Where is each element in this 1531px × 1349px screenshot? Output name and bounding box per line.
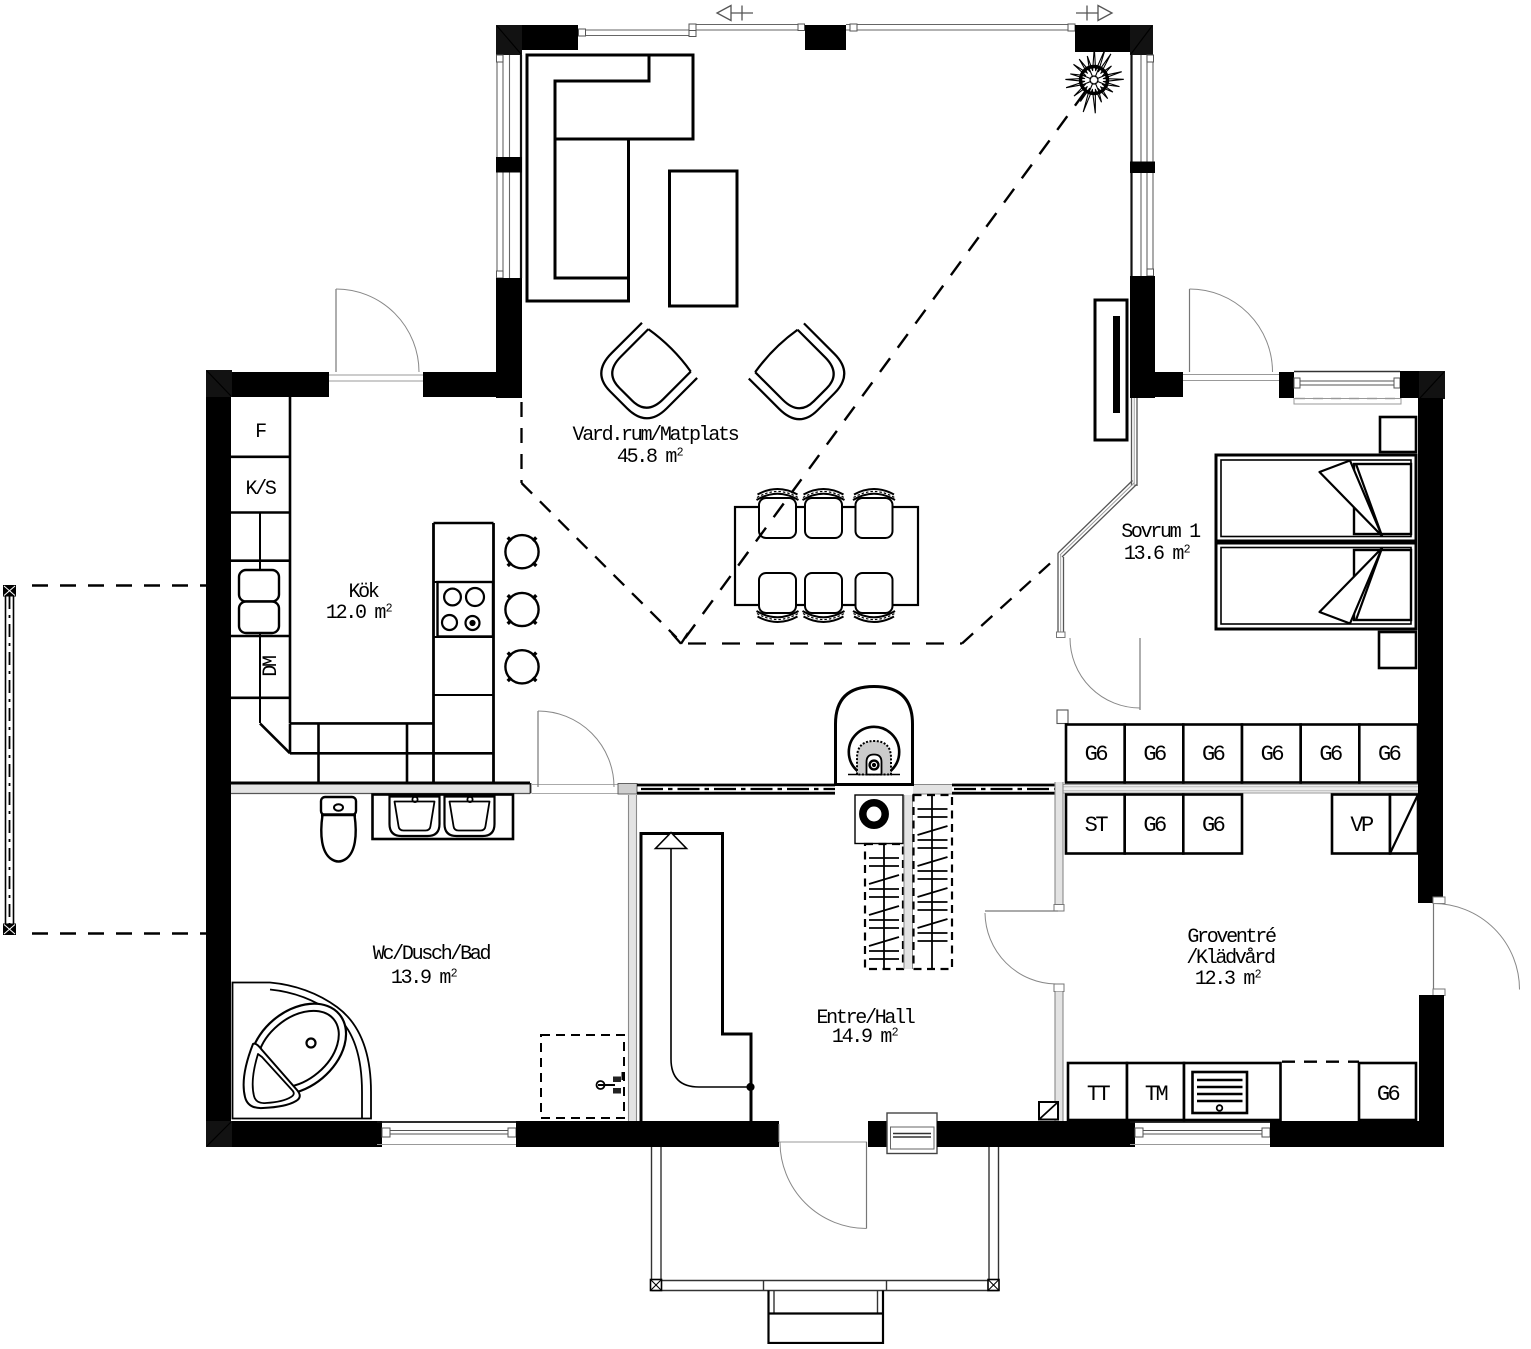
svg-text:K/S: K/S xyxy=(245,478,276,501)
svg-text:G6: G6 xyxy=(1378,742,1401,767)
svg-text:F: F xyxy=(255,421,266,444)
svg-text:G6: G6 xyxy=(1143,742,1166,767)
svg-text:ST: ST xyxy=(1085,813,1109,838)
svg-text:14.9 m: 14.9 m xyxy=(832,1026,892,1049)
svg-text:G6: G6 xyxy=(1143,813,1166,838)
svg-text:12.3 m: 12.3 m xyxy=(1195,968,1255,991)
svg-text:DM: DM xyxy=(260,656,283,677)
svg-text:13.6 m: 13.6 m xyxy=(1124,543,1184,566)
svg-text:Sovrum 1: Sovrum 1 xyxy=(1121,521,1201,544)
svg-text:Wc/Dusch/Bad: Wc/Dusch/Bad xyxy=(373,943,491,966)
svg-text:45.8 m: 45.8 m xyxy=(617,446,677,469)
svg-text:G6: G6 xyxy=(1085,742,1108,767)
svg-text:G6: G6 xyxy=(1261,742,1284,767)
svg-text:VP: VP xyxy=(1350,813,1374,838)
svg-text:Vard.rum/Matplats: Vard.rum/Matplats xyxy=(573,424,739,447)
svg-text:13.9 m: 13.9 m xyxy=(391,967,451,990)
svg-text:/Klädvård: /Klädvård xyxy=(1186,947,1275,970)
svg-text:G6: G6 xyxy=(1319,742,1342,767)
svg-text:G6: G6 xyxy=(1377,1082,1400,1107)
svg-text:Groventré: Groventré xyxy=(1187,926,1276,949)
svg-text:TM: TM xyxy=(1145,1082,1168,1107)
svg-text:12.0 m: 12.0 m xyxy=(326,602,386,625)
svg-text:G6: G6 xyxy=(1202,813,1225,838)
svg-text:TT: TT xyxy=(1087,1082,1111,1107)
svg-text:G6: G6 xyxy=(1202,742,1225,767)
svg-text:Kök: Kök xyxy=(348,581,378,604)
